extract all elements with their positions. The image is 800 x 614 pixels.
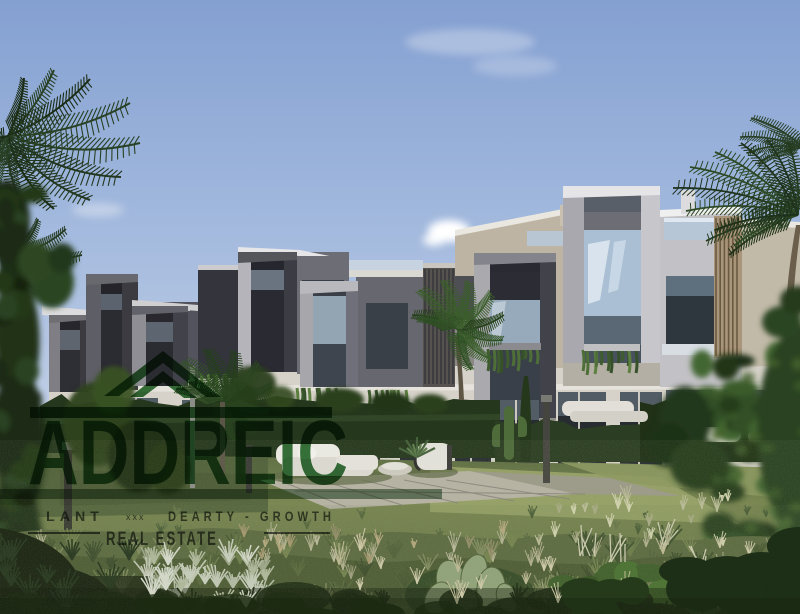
svg-text:DEARTY - GROWTH: DEARTY - GROWTH bbox=[168, 508, 335, 524]
svg-text:xxx: xxx bbox=[126, 512, 146, 522]
svg-text:REAL ESTATE: REAL ESTATE bbox=[106, 529, 218, 550]
svg-text:LANT: LANT bbox=[46, 508, 104, 524]
svg-text:ADDREIC: ADDREIC bbox=[28, 402, 348, 504]
